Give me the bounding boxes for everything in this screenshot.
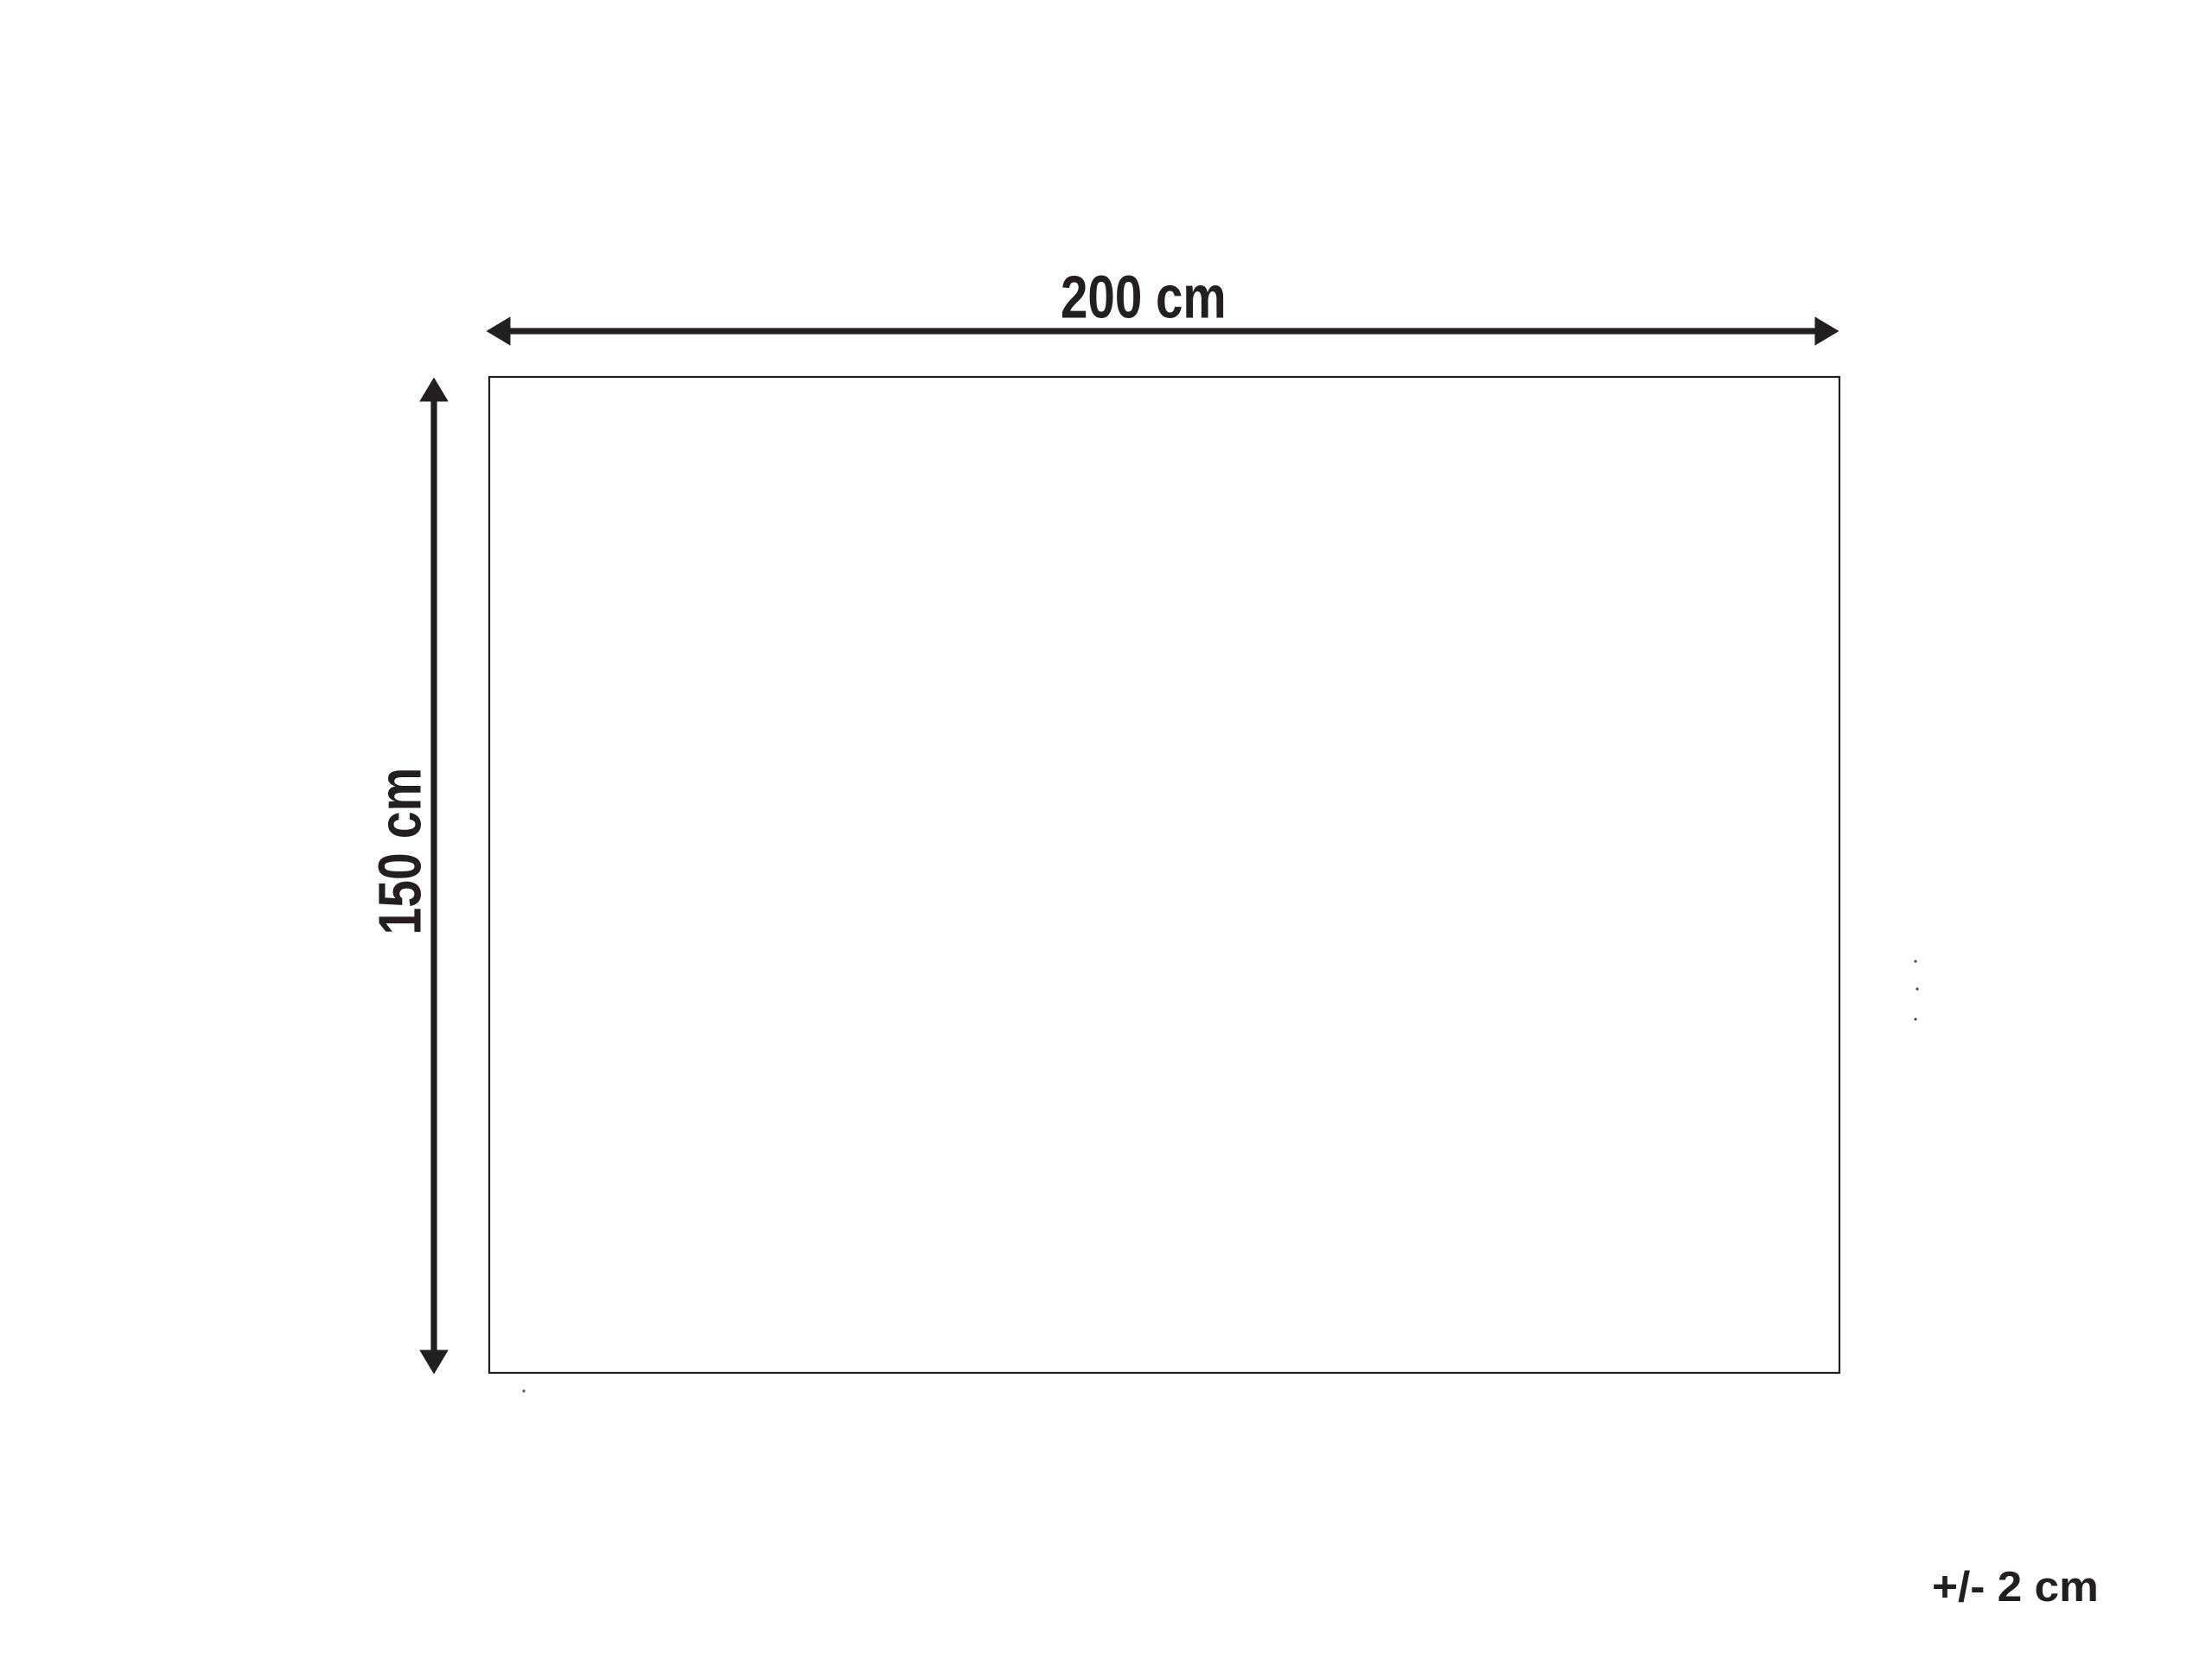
svg-text:150 cm: 150 cm <box>366 768 434 935</box>
svg-text:+/- 2 cm: +/- 2 cm <box>1932 1562 2099 1611</box>
svg-text:200 cm: 200 cm <box>1061 265 1227 331</box>
